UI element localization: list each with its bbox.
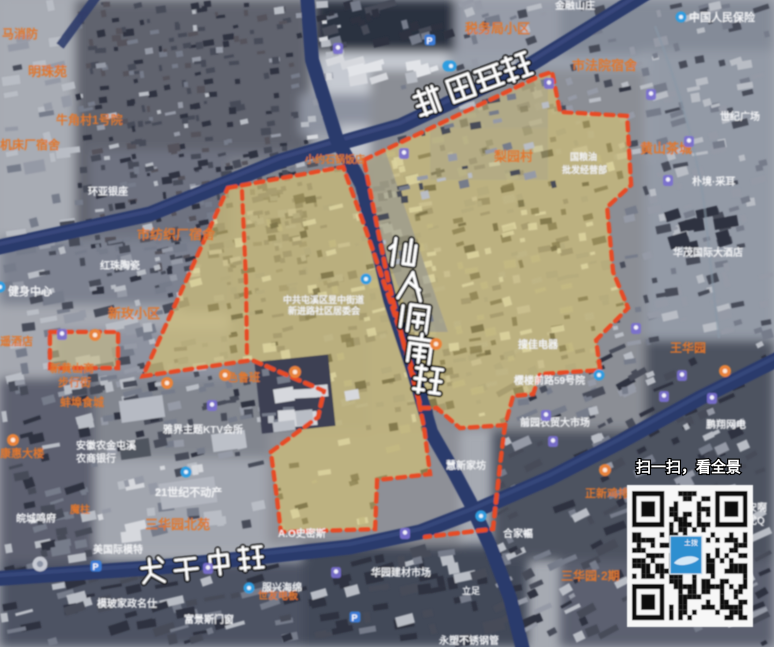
svg-text:华茂国际大酒店: 华茂国际大酒店 xyxy=(673,246,743,259)
svg-text:国粮油: 国粮油 xyxy=(570,151,597,162)
svg-text:三华园·2期: 三华园·2期 xyxy=(561,568,620,583)
svg-text:21世纪不动产: 21世纪不动产 xyxy=(155,485,222,499)
svg-text:P: P xyxy=(352,613,358,623)
svg-text:农商银行: 农商银行 xyxy=(75,452,116,465)
svg-text:中国人民保险: 中国人民保险 xyxy=(689,10,756,24)
svg-text:批发经营部: 批发经营部 xyxy=(562,164,607,175)
svg-text:樱楼前路59号院: 樱楼前路59号院 xyxy=(514,374,585,387)
svg-text:机床厂宿舍: 机床厂宿舍 xyxy=(0,137,61,152)
svg-text:市纺织厂宿舍: 市纺织厂宿舍 xyxy=(137,227,216,242)
svg-text:魔柱: 魔柱 xyxy=(70,503,90,516)
svg-text:税务局小区: 税务局小区 xyxy=(465,21,530,36)
svg-text:P: P xyxy=(93,562,99,572)
svg-text:蚌埠食城: 蚌埠食城 xyxy=(60,395,104,409)
svg-text:A.O史密斯: A.O史密斯 xyxy=(278,527,326,540)
svg-text:慧新家坊: 慧新家坊 xyxy=(446,459,486,472)
svg-text:模玻家政名仕: 模玻家政名仕 xyxy=(97,597,157,610)
svg-text:安徽农金屯溪: 安徽农金屯溪 xyxy=(76,439,137,452)
svg-text:王华园: 王华园 xyxy=(670,340,706,355)
svg-text:正新鸡排: 正新鸡排 xyxy=(585,486,629,500)
svg-text:雅界主题KTV会所: 雅界主题KTV会所 xyxy=(163,423,243,436)
svg-text:康惠大楼: 康惠大楼 xyxy=(0,446,44,460)
svg-text:新黄山商: 新黄山商 xyxy=(50,361,94,375)
svg-text:健身中心: 健身中心 xyxy=(8,284,52,298)
svg-text:朴境·采耳: 朴境·采耳 xyxy=(692,175,735,188)
svg-text:小约石锅饭店: 小约石锅饭店 xyxy=(304,153,365,166)
svg-text:环亚银座: 环亚银座 xyxy=(88,185,128,198)
svg-text:牛角村1号院: 牛角村1号院 xyxy=(56,112,123,127)
svg-text:永塑不锈钢管: 永塑不锈钢管 xyxy=(438,634,499,647)
svg-text:市法院宿舍: 市法院宿舍 xyxy=(572,58,638,73)
svg-text:明珠苑: 明珠苑 xyxy=(28,64,67,79)
svg-text:遥酒店: 遥酒店 xyxy=(0,334,33,348)
svg-text:服兴海绵: 服兴海绵 xyxy=(262,581,302,594)
svg-text:搜佳电器: 搜佳电器 xyxy=(518,338,559,351)
svg-text:扫一扫，看全景: 扫一扫，看全景 xyxy=(636,458,741,476)
svg-text:富景斯门窗: 富景斯门窗 xyxy=(184,613,234,626)
svg-text:鹏翔网电: 鹏翔网电 xyxy=(706,418,746,431)
svg-text:美国际模特: 美国际模特 xyxy=(93,543,143,556)
svg-text:皖城鸣府: 皖城鸣府 xyxy=(16,512,56,525)
svg-text:合家福: 合家福 xyxy=(502,527,533,540)
svg-text:三华园北苑: 三华园北苑 xyxy=(145,517,210,532)
svg-text:华园建材市场: 华园建材市场 xyxy=(371,566,431,579)
svg-text:土拨: 土拨 xyxy=(684,538,698,547)
svg-text:中共屯溪区昱中街道: 中共屯溪区昱中街道 xyxy=(283,294,364,305)
svg-text:马消防: 马消防 xyxy=(2,26,38,41)
svg-text:立足: 立足 xyxy=(462,585,481,596)
svg-text:色鲁班: 色鲁班 xyxy=(227,370,260,384)
svg-text:梨园村: 梨园村 xyxy=(493,149,533,164)
svg-text:红珠陶瓷: 红珠陶瓷 xyxy=(100,259,140,272)
svg-text:P: P xyxy=(427,36,433,46)
svg-text:新进路社区居委会: 新进路社区居委会 xyxy=(288,305,361,316)
svg-text:步行街: 步行街 xyxy=(58,375,91,389)
svg-text:金融山庄: 金融山庄 xyxy=(554,0,595,12)
svg-text:前园农贸大市场: 前园农贸大市场 xyxy=(520,416,590,429)
svg-text:新玫小区: 新玫小区 xyxy=(108,306,160,321)
svg-text:世纪广场: 世纪广场 xyxy=(720,110,760,123)
